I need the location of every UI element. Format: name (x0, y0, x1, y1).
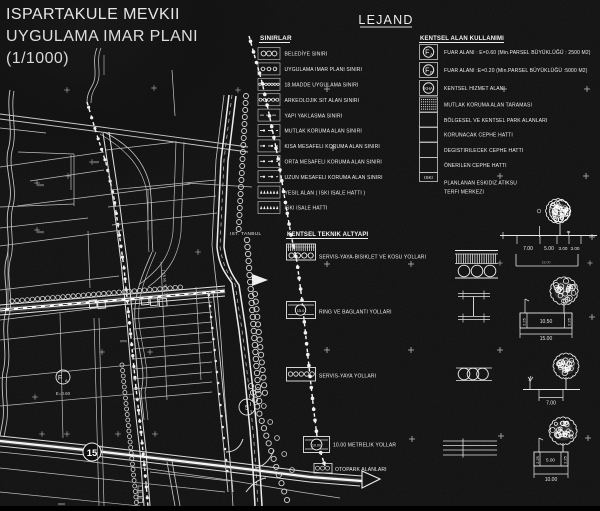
svg-text:SERVIS-YAYA YOLLARI: SERVIS-YAYA YOLLARI (319, 374, 376, 380)
svg-text:ARKEOLOJIK SIT ALAN SINIRI: ARKEOLOJIK SIT ALAN SINIRI (285, 98, 360, 104)
svg-text:3.00: 3.00 (559, 246, 568, 251)
svg-text:UYGULAMA IMAR PLANI SINIRI: UYGULAMA IMAR PLANI SINIRI (285, 67, 363, 73)
svg-text:10.00 METRELIK YOLLAR: 10.00 METRELIK YOLLAR (333, 443, 396, 449)
svg-text:7.00: 7.00 (523, 246, 533, 252)
svg-text:TERFI MERKEZI: TERFI MERKEZI (444, 190, 484, 196)
svg-text:5.00: 5.00 (544, 246, 554, 252)
svg-text:15.00: 15.00 (540, 336, 553, 342)
svg-text:2.25: 2.25 (564, 456, 568, 463)
svg-text:10.00: 10.00 (312, 444, 321, 448)
svg-text:KORUNACAK CEPHE HATTI: KORUNACAK CEPHE HATTI (444, 133, 513, 139)
svg-text:ISPARTAKULE MEVKII: ISPARTAKULE MEVKII (6, 6, 180, 23)
svg-text:FUAR ALANI : E=0.60 (Min.PARS: FUAR ALANI : E=0.60 (Min.PARSEL BÜYÜKLÜĞ… (444, 49, 591, 56)
svg-text:10.00: 10.00 (545, 477, 558, 483)
svg-text:SERVIS-YAYA-BISIKLET VE KOSU Y: SERVIS-YAYA-BISIKLET VE KOSU YOLLARI (319, 255, 426, 261)
svg-text:YESIL ALAN ( ISKI ISALE HATTI: YESIL ALAN ( ISKI ISALE HATTI ) (285, 190, 366, 196)
svg-text:KENTSEL ALAN KULLANIMI: KENTSEL ALAN KULLANIMI (420, 36, 504, 42)
svg-text:2.25: 2.25 (536, 456, 540, 463)
svg-text:SINIRLAR: SINIRLAR (260, 35, 292, 42)
svg-text:ISKI ISALE HATTI: ISKI ISALE HATTI (285, 206, 328, 212)
svg-text:IST. TANBUL: IST. TANBUL (230, 231, 261, 237)
svg-text:UYGULAMA IMAR PLANI: UYGULAMA IMAR PLANI (6, 28, 198, 45)
svg-text:7.00: 7.00 (546, 401, 556, 407)
svg-text:F: F (58, 375, 62, 382)
svg-text:18.00: 18.00 (542, 261, 551, 265)
svg-text:2.25: 2.25 (522, 317, 527, 326)
svg-text:ORTA MESAFELI KORUMA ALAN SINI: ORTA MESAFELI KORUMA ALAN SINIRI (285, 160, 382, 166)
svg-text:F: F (425, 49, 429, 56)
svg-text:MUTLAK KORUMA ALAN TARAMASI: MUTLAK KORUMA ALAN TARAMASI (444, 103, 532, 109)
svg-text:KENTSEL HIZMET ALANI: KENTSEL HIZMET ALANI (444, 86, 505, 92)
svg-text:A: A (65, 378, 68, 383)
svg-text:5.00: 5.00 (546, 458, 555, 463)
svg-text:OTOPARK ALANLARI: OTOPARK ALANLARI (335, 467, 387, 473)
svg-text:F: F (425, 67, 429, 74)
svg-text:ISKI: ISKI (424, 175, 433, 180)
svg-text:DEGISTIRILECEK CEPHE HATTI: DEGISTIRILECEK CEPHE HATTI (444, 148, 523, 154)
svg-text:FUAR ALANI :E=0.20 (Min.PARSE: FUAR ALANI :E=0.20 (Min.PARSEL BÜYÜKLÜĞÜ… (444, 67, 588, 74)
svg-text:YAPI YAKLASMA SINIRI: YAPI YAKLASMA SINIRI (285, 113, 343, 119)
svg-text:A: A (430, 52, 433, 57)
svg-text:(1/1000): (1/1000) (6, 50, 69, 67)
svg-text:E=0.60: E=0.60 (56, 391, 71, 396)
svg-text:KHA: KHA (424, 86, 433, 91)
svg-text:18.MADDE UYGULAMA SINIRI: 18.MADDE UYGULAMA SINIRI (285, 83, 359, 89)
svg-text:00: 00 (99, 444, 104, 449)
svg-text:B: B (430, 70, 433, 75)
svg-text:15.0: 15.0 (297, 308, 305, 313)
svg-text:2.25: 2.25 (567, 317, 572, 326)
svg-text:3.00: 3.00 (571, 246, 580, 251)
svg-text:KENTSEL TEKNIK ALTYAPI: KENTSEL TEKNIK ALTYAPI (287, 232, 368, 238)
svg-text:BÖLGESEL VE KENTSEL PARK ALANL: BÖLGESEL VE KENTSEL PARK ALANLARI (444, 117, 547, 124)
svg-text:KISA MESAFELI KORUMA ALAN SINI: KISA MESAFELI KORUMA ALAN SINIRI (285, 144, 380, 150)
svg-text:BELEDİYE SINIRI: BELEDİYE SINIRI (285, 51, 328, 58)
svg-text:UZUN MESAFELI KORUMA ALAN SINI: UZUN MESAFELI KORUMA ALAN SINIRI (285, 175, 383, 181)
svg-text:MUTLAK KORUMA ALAN SINIRI: MUTLAK KORUMA ALAN SINIRI (285, 129, 362, 135)
svg-text:LEJAND: LEJAND (358, 13, 413, 27)
svg-text:ÖNERILEN CEPHE HATTI: ÖNERILEN CEPHE HATTI (444, 162, 507, 169)
svg-text:PLANLANAN ESKIDIZ ATIKSU: PLANLANAN ESKIDIZ ATIKSU (444, 181, 517, 187)
svg-text:RING VE BAGLANTI YOLLARI: RING VE BAGLANTI YOLLARI (319, 310, 392, 316)
svg-text:15: 15 (87, 448, 98, 459)
svg-text:10.50: 10.50 (540, 319, 553, 325)
